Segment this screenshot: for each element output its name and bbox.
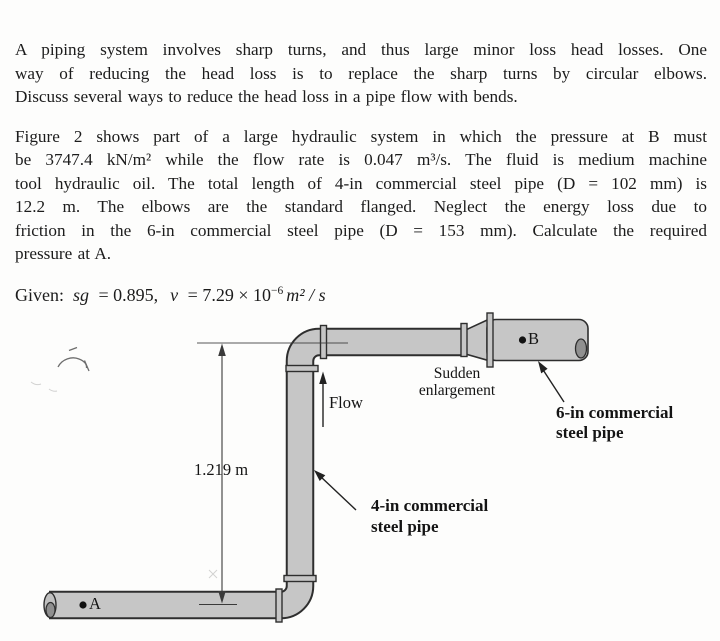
flange-top-elbow-vertical: [286, 366, 318, 372]
text-line: tool hydraulic oil. The total length of …: [15, 172, 707, 196]
enlargement-and-6in-pipe: [466, 320, 588, 361]
flange-bottom-elbow-horizontal: [276, 589, 282, 622]
flange-bottom-elbow-vertical: [284, 576, 316, 582]
point-a-dot: [79, 601, 86, 608]
text-line: be 3747.4 kN/m² while the flow rate is 0…: [15, 148, 707, 172]
scribble-hook: [85, 361, 90, 372]
piping-diagram-svg: [0, 300, 720, 641]
pencil-scribble: [58, 348, 89, 372]
flow-label: Flow: [329, 393, 363, 413]
pipe6-pointer-arrow: [538, 361, 564, 402]
text-line: pressure at A.: [15, 242, 707, 266]
flange-enlargement-small: [461, 324, 467, 357]
sudden-enlargement-cone: [466, 320, 488, 361]
problem-text: A piping system involves sharp turns, an…: [15, 8, 707, 308]
pipe-6in-opening: [576, 339, 587, 358]
flow-arrowhead: [319, 372, 327, 385]
sudden-enlargement-label: Sudden enlargement: [399, 366, 515, 399]
flange-enlargement-large: [487, 313, 493, 367]
dimension-label: 1.219 m: [194, 460, 248, 480]
pipe4-pointer-line: [321, 477, 357, 511]
text-line: Discuss several ways to reduce the head …: [15, 85, 707, 109]
dimension-arrowhead-up: [218, 344, 226, 357]
text-line: way of reducing the head loss is to repl…: [15, 62, 707, 86]
pipe6-pointer-head: [538, 361, 548, 373]
scribble-curve: [58, 358, 87, 368]
pipe4-pointer-arrow: [314, 470, 356, 510]
flow-arrow: [319, 372, 327, 428]
text-line: Figure 2 shows part of a large hydraulic…: [15, 125, 707, 149]
flange-top-elbow-horizontal: [321, 326, 327, 359]
scan-smudges: [31, 382, 217, 578]
smudge-x-mark: [209, 570, 217, 578]
pipe4-label: 4-in commercial steel pipe: [371, 495, 488, 537]
figure-2-piping-diagram: Flow Sudden enlargement B A 6-in commerc…: [0, 300, 720, 641]
pipe6-pointer-line: [544, 371, 565, 403]
point-b-label: B: [528, 329, 539, 349]
smudge-mark: [49, 389, 57, 391]
text-line: 12.2 m. The elbows are the standard flan…: [15, 195, 707, 219]
text-line: friction in the 6-in commercial steel pi…: [15, 219, 707, 243]
pipe-a-opening: [46, 603, 55, 618]
given-exponent: −6: [271, 285, 283, 297]
text-line: A piping system involves sharp turns, an…: [15, 38, 707, 62]
scribble-tick: [69, 348, 77, 351]
pipe6-label: 6-in commercial steel pipe: [556, 403, 673, 443]
point-a-label: A: [89, 594, 101, 614]
point-b-dot: [519, 336, 526, 343]
smudge-mark: [31, 382, 41, 385]
